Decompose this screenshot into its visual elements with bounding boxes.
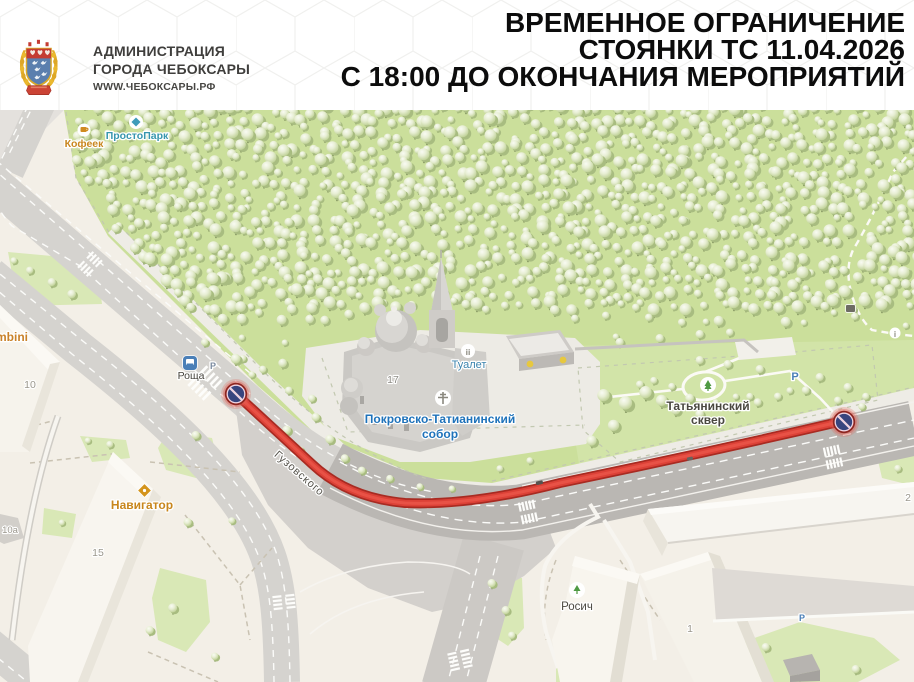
svg-text:Туалет: Туалет	[452, 359, 487, 371]
svg-text:Роща: Роща	[178, 370, 205, 382]
svg-text:10: 10	[24, 379, 36, 391]
svg-text:Росич: Росич	[561, 601, 593, 613]
svg-text:ii: ii	[466, 347, 471, 357]
svg-text:собор: собор	[422, 427, 458, 441]
svg-text:Кофеек: Кофеек	[65, 138, 105, 150]
svg-text:17: 17	[387, 374, 399, 386]
svg-text:Покровско-Татианинский: Покровско-Татианинский	[365, 412, 516, 426]
svg-text:Р: Р	[791, 371, 798, 383]
svg-text:Навигатор: Навигатор	[111, 498, 173, 512]
svg-text:i: i	[894, 330, 896, 339]
svg-text:15: 15	[92, 547, 104, 559]
svg-text:сквер: сквер	[691, 413, 725, 427]
svg-text:Р: Р	[799, 613, 805, 623]
svg-text:Татьянинский: Татьянинский	[666, 399, 749, 413]
svg-text:10а: 10а	[2, 525, 19, 536]
svg-text:1: 1	[687, 623, 693, 635]
svg-text:Gambini: Gambini	[0, 330, 28, 344]
svg-text:ПростоПарк: ПростоПарк	[106, 130, 169, 142]
svg-text:2: 2	[905, 492, 911, 504]
svg-text:Р: Р	[210, 361, 216, 371]
